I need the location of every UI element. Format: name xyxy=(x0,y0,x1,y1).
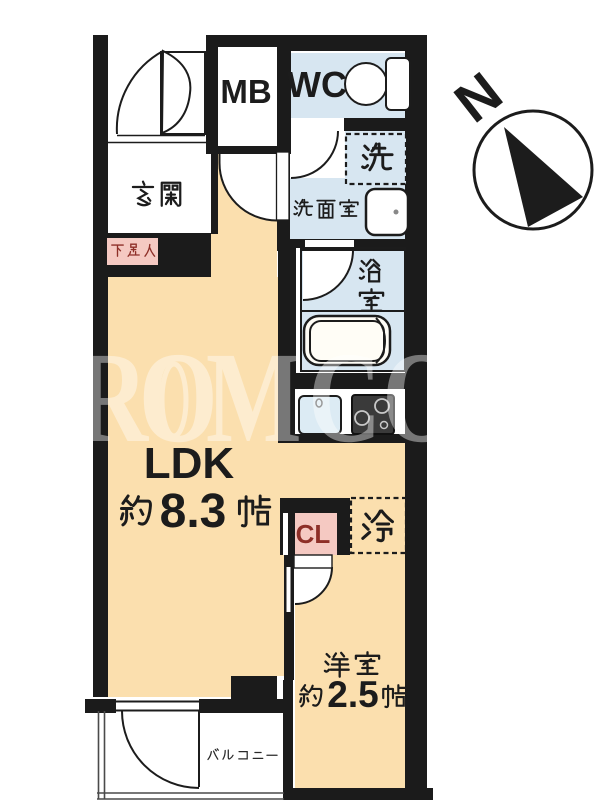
svg-text:M: M xyxy=(206,326,302,470)
svg-text:C: C xyxy=(308,326,381,470)
svg-text:MB: MB xyxy=(220,73,271,110)
svg-text:O: O xyxy=(382,326,461,470)
svg-text:8.3: 8.3 xyxy=(160,485,227,538)
svg-text:CL: CL xyxy=(296,519,331,549)
svg-text:WC: WC xyxy=(287,64,347,105)
svg-text:2.5: 2.5 xyxy=(327,674,378,715)
